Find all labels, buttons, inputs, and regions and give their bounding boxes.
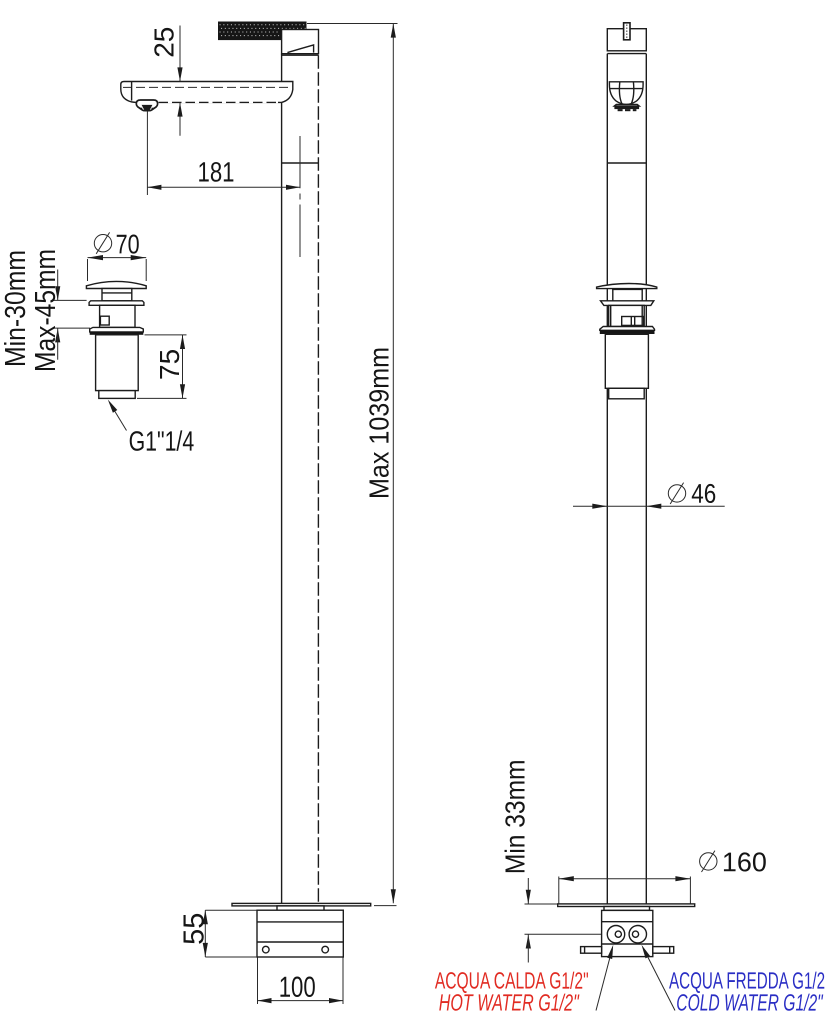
svg-text:25: 25 — [149, 27, 180, 58]
svg-text:COLD WATER G1/2": COLD WATER G1/2" — [676, 990, 824, 1016]
svg-text:Max-45mm: Max-45mm — [30, 249, 62, 372]
svg-text:HOT WATER G1/2": HOT WATER G1/2" — [439, 990, 580, 1016]
svg-text:46: 46 — [691, 479, 716, 509]
svg-text:100: 100 — [279, 972, 316, 1004]
svg-text:181: 181 — [197, 156, 234, 187]
svg-text:75: 75 — [154, 349, 185, 380]
svg-text:Min-30mm: Min-30mm — [0, 250, 32, 367]
svg-text:160: 160 — [722, 847, 767, 877]
svg-text:55: 55 — [178, 913, 210, 945]
svg-text:Max 1039mm: Max 1039mm — [364, 347, 395, 499]
svg-text:G1"1/4: G1"1/4 — [129, 426, 195, 457]
svg-text:Min 33mm: Min 33mm — [499, 760, 530, 875]
svg-text:70: 70 — [116, 229, 140, 259]
